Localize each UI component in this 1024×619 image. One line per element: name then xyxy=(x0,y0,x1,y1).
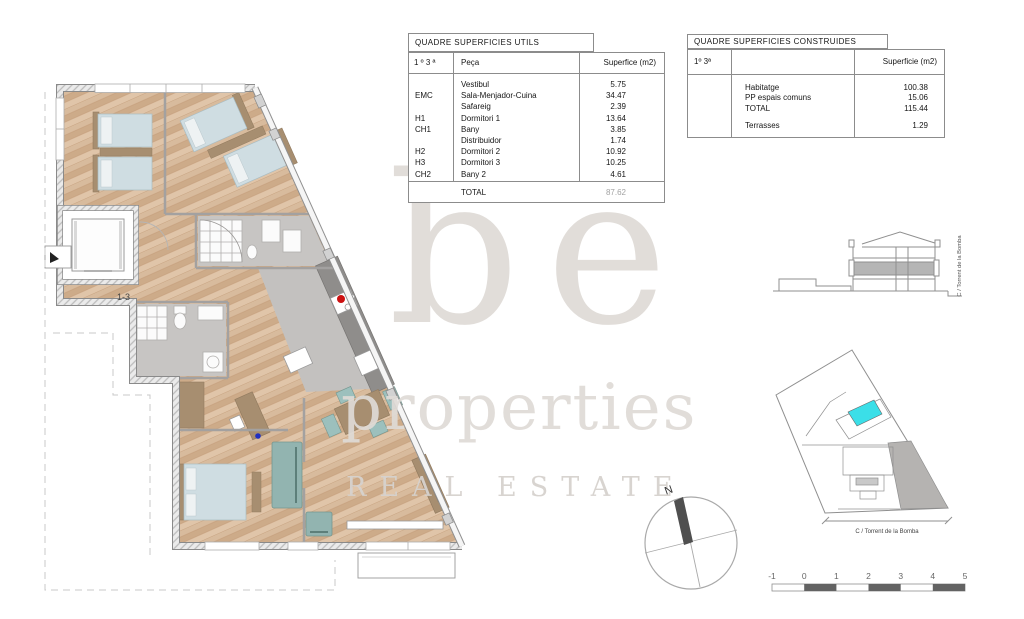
floor-plan-page: { "plan": { "unit_label": "1-3" }, "tabl… xyxy=(0,0,1024,619)
table-row: CH2Bany 24.61 xyxy=(409,169,664,180)
utils-table-header: 1 º 3 ª Peça Superfice (m2) xyxy=(409,53,664,74)
scale-label: 0 xyxy=(802,571,807,581)
scale-label: 3 xyxy=(898,571,903,581)
col-room: Peça xyxy=(461,58,479,67)
north-label: N xyxy=(663,484,675,498)
col-area: Superficie (m2) xyxy=(883,57,937,66)
utils-table: 1 º 3 ª Peça Superfice (m2) Vestibul5.75… xyxy=(408,52,665,203)
section-floor-highlight xyxy=(853,262,935,275)
scale-label: 2 xyxy=(866,571,871,581)
section-street-label: C / Torrent de la Bomba xyxy=(957,235,963,297)
table-row: H2Dormitori 210.92 xyxy=(409,146,664,157)
scale-label: 5 xyxy=(963,571,968,581)
table-row: Habitatge100.38 xyxy=(688,83,944,93)
utils-total-row: TOTAL 87.62 xyxy=(409,181,664,204)
scale-label: 4 xyxy=(930,571,935,581)
col-floor: 1º 3ª xyxy=(694,57,711,66)
table-row: EMCSala-Menjador-Cuina34.47 xyxy=(409,90,664,101)
table-row: PP espais comuns15.06 xyxy=(688,93,944,103)
construides-table-title: QUADRE SUPERFICIES CONSTRUIDES xyxy=(687,34,888,49)
construides-table-header: 1º 3ª Superficie (m2) xyxy=(688,50,944,75)
total-value: 87.62 xyxy=(606,182,626,204)
utils-table-title: QUADRE SUPERFICIES UTILS xyxy=(408,33,594,52)
table-row: CH1Bany3.85 xyxy=(409,124,664,135)
scale-label: -1 xyxy=(768,571,776,581)
construides-table-rows: Habitatge100.38 PP espais comuns15.06 TO… xyxy=(688,83,944,114)
construides-table: 1º 3ª Superficie (m2) Habitatge100.38 PP… xyxy=(687,49,945,138)
table-row: TOTAL115.44 xyxy=(688,104,944,114)
site-plan: C / Torrent de la Bomba xyxy=(776,350,952,535)
terrace-row-wrap: Terrasses1.29 xyxy=(688,121,944,131)
table-row: Vestibul5.75 xyxy=(409,79,664,90)
table-row: H3Dormitori 310.25 xyxy=(409,157,664,168)
scale-label: 1 xyxy=(834,571,839,581)
utils-table-rows: Vestibul5.75 EMCSala-Menjador-Cuina34.47… xyxy=(409,79,664,180)
site-dimension-line xyxy=(822,517,952,524)
total-label: TOTAL xyxy=(461,182,486,204)
col-area: Superfice (m2) xyxy=(604,58,656,67)
scale-labels: -1 0 1 2 3 4 5 xyxy=(768,571,967,581)
table-row: Distribuidor1.74 xyxy=(409,135,664,146)
table-row: Terrasses1.29 xyxy=(688,121,944,131)
building-section xyxy=(773,232,962,296)
compass: N xyxy=(645,484,737,589)
col-floor: 1 º 3 ª xyxy=(414,58,435,67)
table-row: Safareig2.39 xyxy=(409,101,664,112)
site-street-label: C / Torrent de la Bomba xyxy=(855,529,919,535)
table-row: H1Dormitori 113.64 xyxy=(409,113,664,124)
scale-bar: -1 0 1 2 3 4 5 xyxy=(768,571,967,591)
